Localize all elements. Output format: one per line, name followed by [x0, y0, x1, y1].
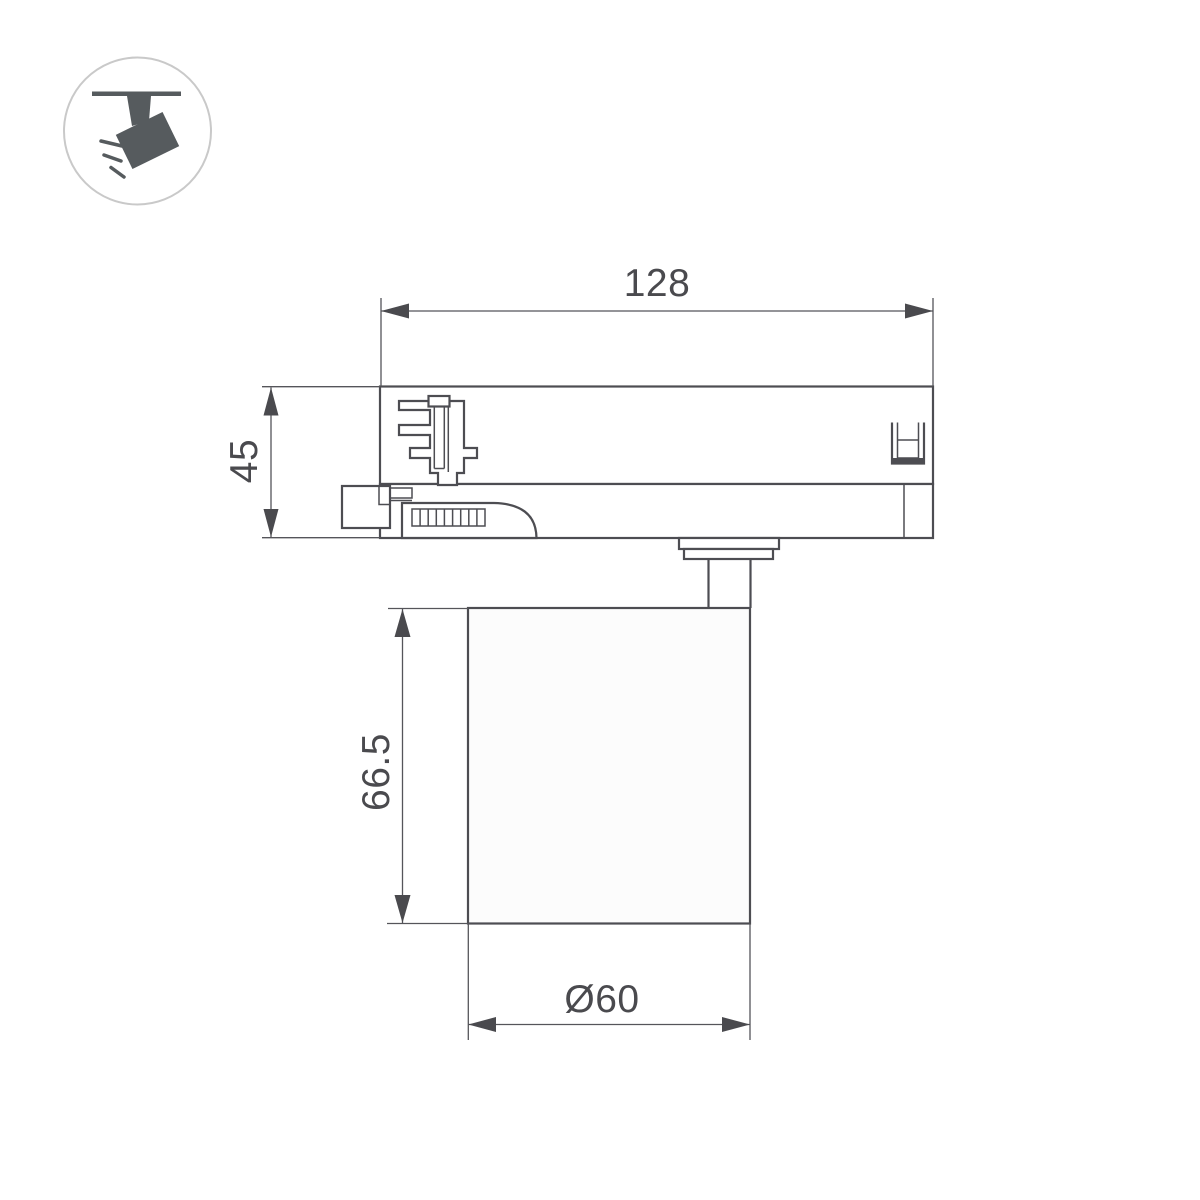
dim-body-diameter: Ø60	[468, 924, 750, 1041]
icon-track-bar	[92, 92, 181, 97]
contact-screw-cap	[429, 396, 450, 407]
dim-body-height-label: 66.5	[355, 733, 398, 811]
arrowhead-up	[264, 388, 279, 416]
lamp-body-cylinder	[468, 608, 750, 924]
arrowhead-right	[722, 1017, 750, 1032]
arrowhead-left	[381, 304, 409, 319]
dim-body-diameter-label: Ø60	[564, 978, 639, 1021]
arrowhead-up	[395, 609, 411, 637]
drawing-svg: 128 45 66.5 Ø60	[0, 0, 1200, 1200]
mount-flange	[679, 538, 779, 608]
arrowhead-left	[468, 1017, 496, 1032]
track-adapter	[342, 387, 933, 539]
arrowhead-right	[905, 304, 933, 319]
arrowhead-down	[264, 509, 279, 537]
flange-step-1	[679, 538, 779, 549]
ceiling-track-spotlight-icon	[64, 58, 211, 205]
dim-body-height: 66.5	[355, 609, 470, 924]
dim-adapter-width: 128	[381, 262, 933, 386]
flange-step-2	[684, 549, 773, 559]
icon-light-rays	[101, 141, 124, 177]
icon-spot-body	[116, 112, 179, 169]
dim-adapter-height-label: 45	[223, 439, 266, 483]
dim-adapter-width-label: 128	[624, 262, 691, 305]
lock-knob	[342, 486, 390, 528]
arrowhead-down	[395, 895, 411, 923]
technical-drawing-page: 128 45 66.5 Ø60	[0, 0, 1200, 1200]
